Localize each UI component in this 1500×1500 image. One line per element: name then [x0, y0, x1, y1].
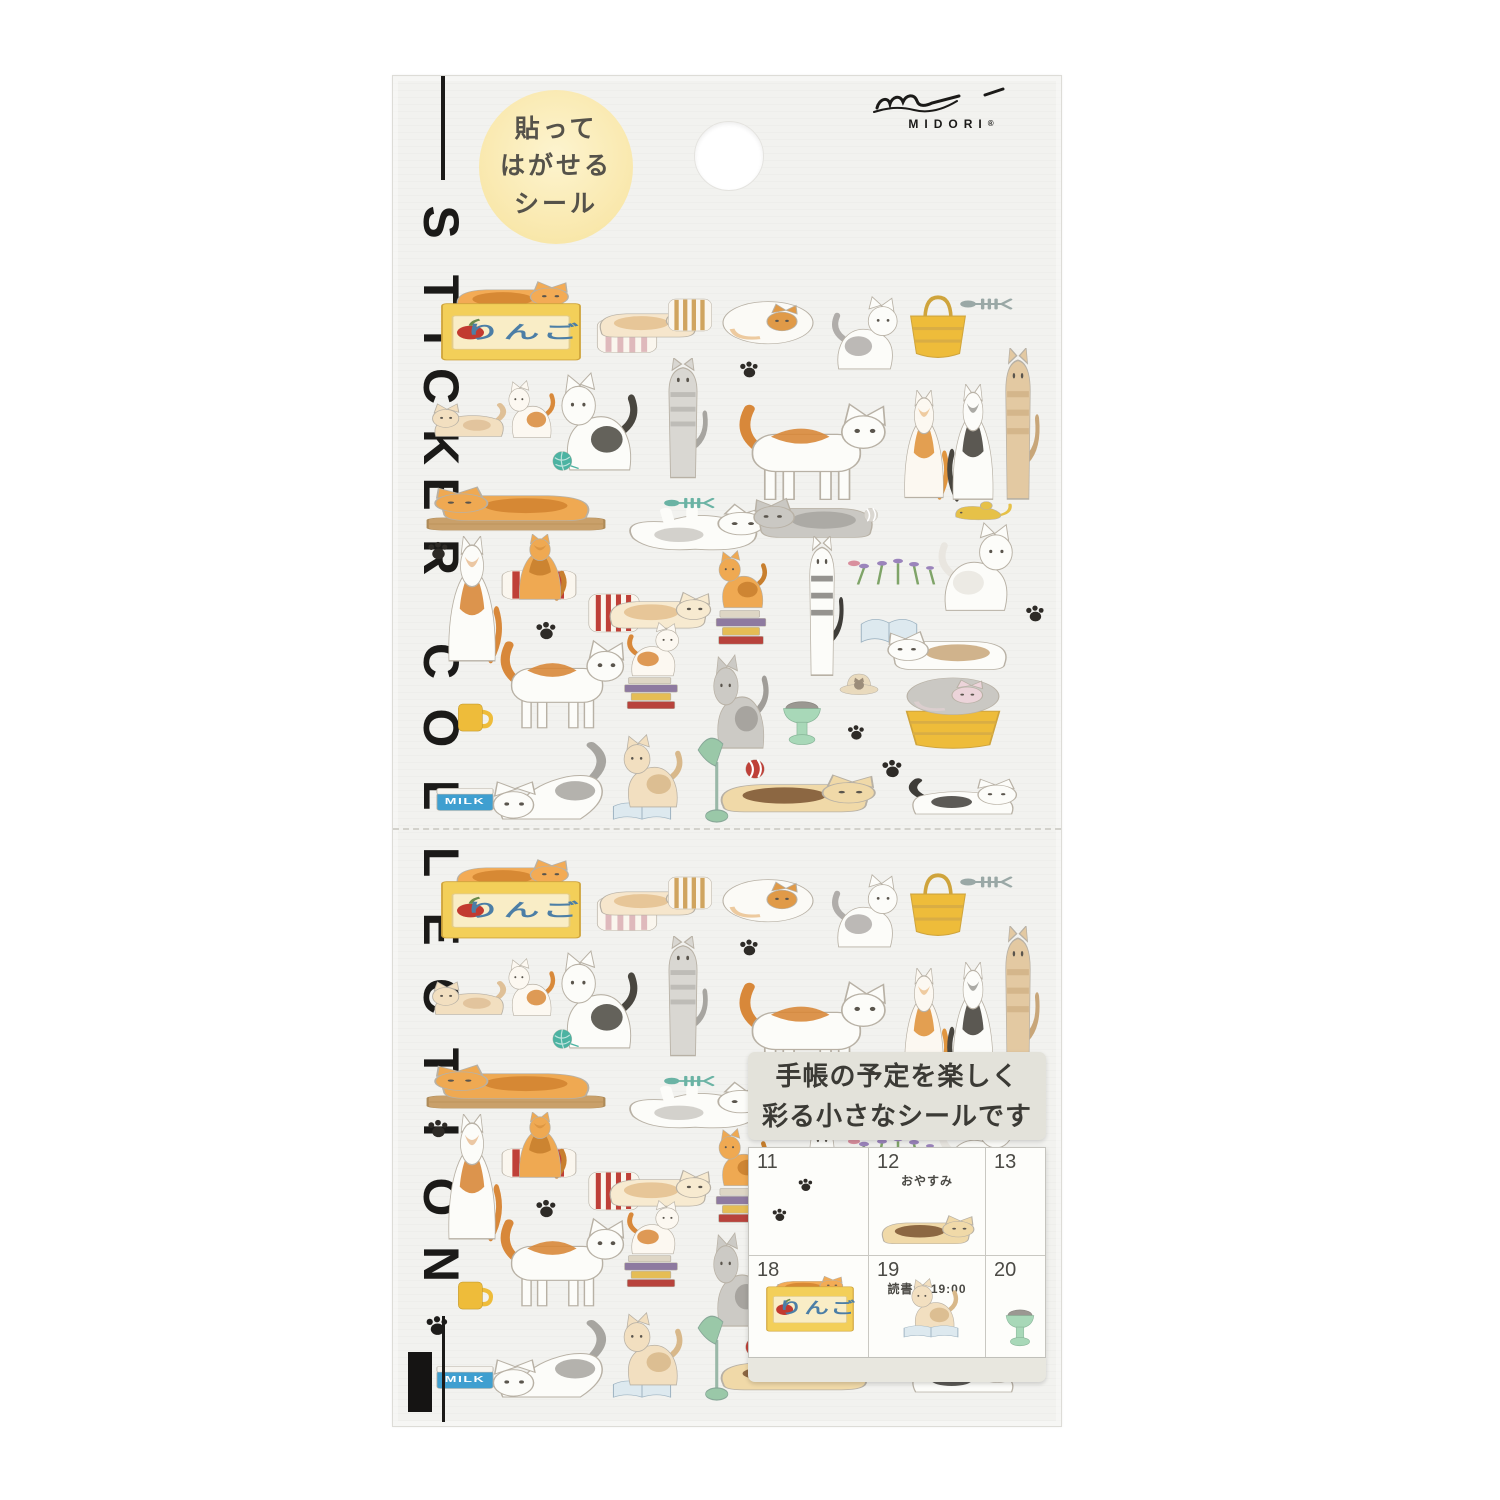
- sticker-paw: [534, 618, 558, 642]
- sticker-catSit: [554, 950, 642, 1052]
- sticker-basket: [902, 288, 974, 366]
- sticker-basket: [892, 686, 1014, 756]
- sticker-catSit: [504, 380, 558, 440]
- sticker-catBack: [942, 384, 1004, 504]
- sticker-catCrouch: [906, 760, 1026, 820]
- sticker-hatCat: [834, 662, 884, 708]
- sticker-books: [618, 1242, 684, 1294]
- sticker-catStretchV: [984, 348, 1052, 502]
- sticker-catSit: [554, 372, 642, 474]
- sticker-pillowStriped: [666, 294, 714, 336]
- sticker-ball: [740, 754, 770, 784]
- sticker-catLie: [706, 752, 880, 820]
- sticker-books: [710, 596, 772, 652]
- sticker-plant: [844, 544, 944, 590]
- sticker-paw: [738, 936, 760, 958]
- sticker-catLie: [590, 864, 704, 922]
- sticker-catOnBack: [610, 482, 774, 562]
- sticker-catWalk: [734, 388, 888, 504]
- sticker-paw: [426, 538, 450, 562]
- sticker-catStretchV: [788, 536, 856, 678]
- calendar-cell-20: 20: [986, 1256, 1046, 1358]
- sticker-fishbone: [958, 866, 1014, 898]
- sticker-paw: [738, 358, 760, 380]
- sticker-mug: [448, 690, 500, 744]
- sticker-paw: [846, 722, 866, 742]
- sticker-pillowStriped: [666, 872, 714, 914]
- sticker-yarn: [546, 444, 580, 478]
- sticker-catCurl: [718, 866, 818, 928]
- sticker-milk: MILK: [426, 774, 504, 822]
- calendar-note: 読書会 19:00: [869, 1280, 985, 1297]
- sticker-catSit: [714, 550, 770, 610]
- sticker-lamp: [682, 728, 744, 828]
- info-line: 手帳の予定を楽しく: [775, 1056, 1018, 1096]
- title-dash-bottom: [442, 1316, 445, 1422]
- sticker-catCrouch: [426, 386, 508, 442]
- sticker-catSit: [618, 1312, 686, 1388]
- sticker-paw: [534, 1196, 558, 1220]
- calendar-note: おやすみ: [869, 1172, 985, 1189]
- calendar-cell-18: 18ヨガ 11:00: [749, 1256, 869, 1358]
- sticker-catWalk: [496, 626, 626, 732]
- sticker-catStretchV: [644, 358, 722, 480]
- calendar-cell-19: 19読書会 19:00: [869, 1256, 986, 1358]
- sticker-catLie: [600, 1148, 714, 1214]
- sticker-catLie: [446, 840, 572, 898]
- sticker-catBack: [508, 534, 572, 602]
- calendar-cell-12: 12おやすみ: [869, 1148, 986, 1256]
- sticker-bookOpen: [608, 792, 676, 832]
- sticker-basket: [902, 866, 974, 944]
- sticker-pillowStriped: [498, 566, 580, 604]
- sticker-catLie: [750, 474, 884, 546]
- sticker-bookOpen: [856, 604, 922, 660]
- sticker-fishbone: [958, 288, 1014, 320]
- sticker-catSit: [708, 654, 772, 752]
- info-box: 手帳の予定を楽しく 彩る小さなシールです: [748, 1052, 1046, 1140]
- sticker-milk: MILK: [426, 1352, 504, 1400]
- sticker-pillowStriped: [498, 1144, 580, 1182]
- sticker-catLie: [884, 608, 1018, 678]
- sticker-mug: [448, 1268, 500, 1322]
- calendar-day-number: 20: [994, 1259, 1046, 1282]
- calendar-day-number: 13: [994, 1151, 1046, 1174]
- sticker-books: [618, 664, 684, 716]
- sticker-catSit: [618, 734, 686, 810]
- svg-text:りんご: りんご: [465, 322, 582, 343]
- sticker-boxApple: りんご: [436, 868, 586, 944]
- sticker-catBack: [436, 536, 508, 666]
- sticker-catPounce: [484, 738, 618, 826]
- calendar-day-number: 12: [877, 1151, 985, 1174]
- sticker-catCurl: [718, 288, 818, 350]
- black-mark: [408, 1352, 432, 1412]
- sticker-pillowStriped: [594, 892, 660, 936]
- sticker-pillowStriped: [594, 314, 660, 358]
- sticker-pillowStriped: [586, 1166, 642, 1216]
- sticker-bar: [424, 1088, 608, 1116]
- sticker-catCurl: [902, 666, 1004, 720]
- info-line: 彩る小さなシールです: [762, 1096, 1032, 1136]
- sticker-paw: [1024, 602, 1046, 624]
- calendar-note: ヨガ 11:00: [749, 1280, 868, 1297]
- sticker-bookOpen: [608, 1370, 676, 1410]
- sticker-catSit: [828, 296, 904, 372]
- sticker-fishbone: [662, 1066, 716, 1096]
- sticker-catCrouch: [426, 964, 508, 1020]
- sticker-catSit: [624, 622, 684, 678]
- sticker-catBack: [508, 1112, 572, 1180]
- svg-text:MILK: MILK: [445, 796, 486, 806]
- sticker-fishbone: [662, 488, 716, 518]
- sticker-catSit: [504, 958, 558, 1018]
- sticker-bowlPedestal: [774, 690, 830, 752]
- calendar-cell-13: 13: [986, 1148, 1046, 1256]
- sticker-catWalk: [496, 1204, 626, 1310]
- sticker-catBack: [436, 1114, 508, 1244]
- product-photo: 貼って はがせる シール MIDORI® STICKERCOLLECTION り…: [0, 0, 1500, 1500]
- sticker-catSit: [934, 522, 1020, 614]
- sticker-catStretchV: [644, 936, 722, 1058]
- sticker-bar: [424, 510, 608, 538]
- sticker-catLie: [600, 570, 714, 636]
- sample-bottom-bar: [748, 1358, 1046, 1382]
- svg-text:MILK: MILK: [445, 1374, 486, 1384]
- sticker-mouse: [948, 488, 1014, 532]
- calendar-day-number: 19: [877, 1259, 985, 1282]
- sticker-catSit: [828, 874, 904, 950]
- calendar-day-number: 11: [757, 1151, 868, 1174]
- sticker-catLie: [430, 466, 604, 528]
- sticker-lamp: [682, 1306, 744, 1406]
- sticker-ball: [860, 504, 882, 526]
- sticker-catLie: [430, 1044, 604, 1106]
- calendar-cell-11: 11: [749, 1148, 869, 1256]
- sticker-boxApple: りんご: [436, 290, 586, 366]
- sticker-catBack: [894, 390, 954, 502]
- svg-text:りんご: りんご: [465, 900, 582, 921]
- sticker-catSit: [624, 1200, 684, 1256]
- sticker-catLie: [446, 262, 572, 320]
- sticker-catPounce: [484, 1316, 618, 1404]
- sample-calendar: 1112おやすみ1318ヨガ 11:0019読書会 19:0020りんご: [748, 1147, 1046, 1358]
- sticker-paw: [880, 756, 904, 780]
- sticker-pillowStriped: [586, 588, 642, 638]
- sticker-paw: [424, 1312, 450, 1338]
- calendar-day-number: 18: [757, 1259, 868, 1282]
- sticker-paw: [426, 1116, 450, 1140]
- sticker-catLie: [590, 286, 704, 344]
- sticker-yarn: [546, 1022, 580, 1056]
